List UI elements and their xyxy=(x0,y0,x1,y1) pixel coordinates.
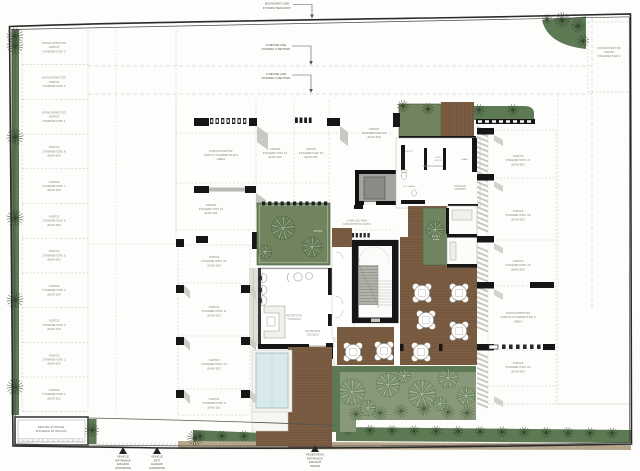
svg-text:RECEPTIONΥΠΟΔΟΧΗ: RECEPTIONΥΠΟΔΟΧΗ xyxy=(286,314,302,322)
svg-text:VEHICLEENTRANCEΕΙΣΟΔΟΣΟΧΗΜΑΤΩΝ: VEHICLEENTRANCEΕΙΣΟΔΟΣΟΧΗΜΑΤΩΝ xyxy=(115,455,131,470)
svg-text:3 METRE LINEΓΡΑΜΜΗ 3 ΜΕΤΡΩΝ: 3 METRE LINEΓΡΑΜΜΗ 3 ΜΕΤΡΩΝ xyxy=(262,72,291,80)
svg-text:VEHICLEEXITΕΞΟΔΟΣΟΧΗΜΑΤΩΝ: VEHICLEEXITΕΞΟΔΟΣΟΧΗΜΑΤΩΝ xyxy=(149,455,165,470)
svg-text:BOUNDARY LINEΣΥΝΟΡΑ ΤΕΜΑΧΙΟΥ: BOUNDARY LINEΣΥΝΟΡΑ ΤΕΜΑΧΙΟΥ xyxy=(263,2,291,10)
svg-text:3 METRE LINEΓΡΑΜΜΗ 3 ΜΕΤΡΩΝ: 3 METRE LINEΓΡΑΜΜΗ 3 ΜΕΤΡΩΝ xyxy=(262,43,291,51)
svg-text:REFUSE STORAGEΑΠΟΘΗΚΗ ΣΚΥΒΑΛΩΝ: REFUSE STORAGEΑΠΟΘΗΚΗ ΣΚΥΒΑΛΩΝ xyxy=(35,425,66,433)
svg-text:COMM. BILL AREAΚΟΙΝΟΧΡΗΣΤΟΣ ΧΩ: COMM. BILL AREAΚΟΙΝΟΧΡΗΣΤΟΣ ΧΩΡΟΣ xyxy=(343,220,371,226)
svg-text:ΧΩΡΟΣ: ΧΩΡΟΣ xyxy=(405,151,413,153)
svg-text:ENTRANCEΕΙΣΟΔΟΣ: ENTRANCEΕΙΣΟΔΟΣ xyxy=(306,329,321,337)
svg-text:ΔΙΑΔΡ.: ΔΙΑΔΡ. xyxy=(462,158,469,161)
svg-text:W.C. AREA: W.C. AREA xyxy=(403,185,415,188)
svg-text:ΚΗΠΟΣ: ΚΗΠΟΣ xyxy=(314,230,323,233)
